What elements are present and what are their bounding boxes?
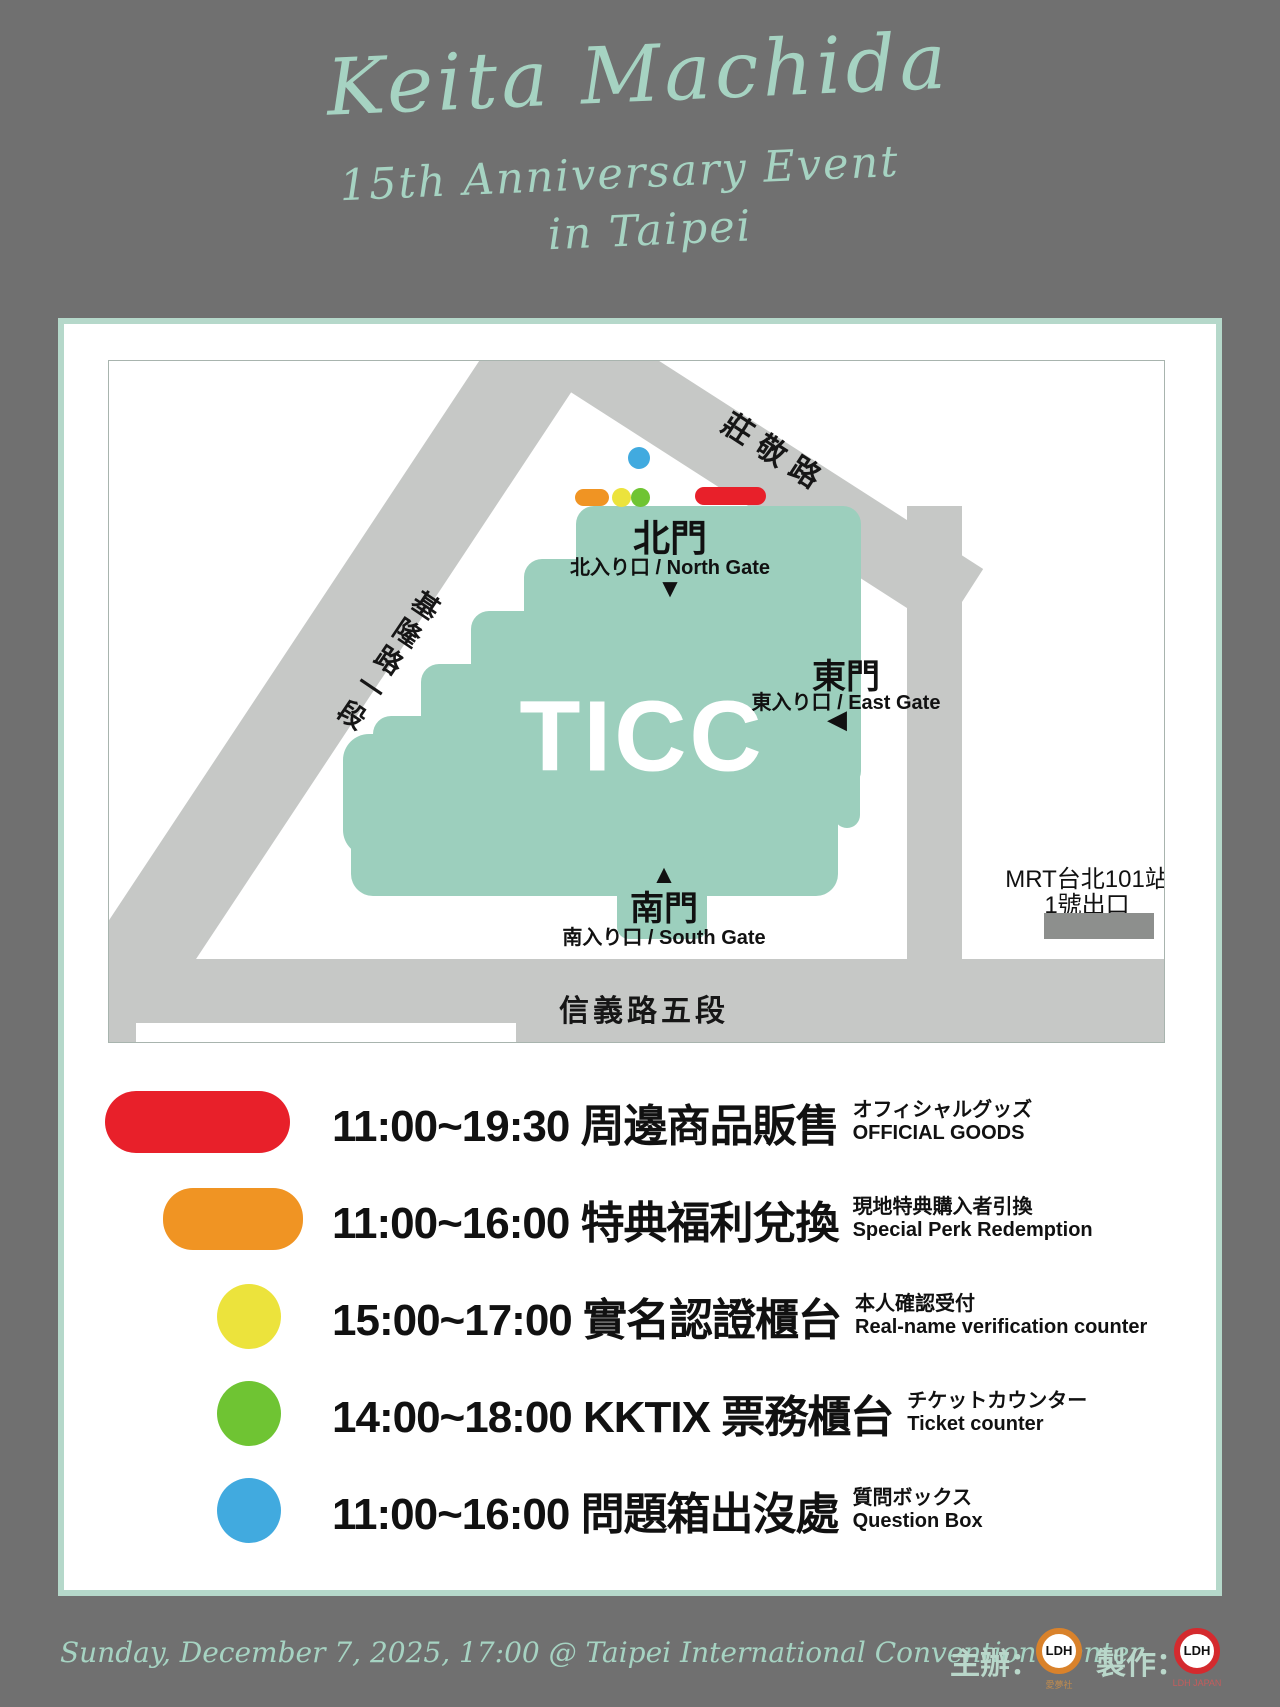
map-marker-ticket-counter bbox=[631, 488, 650, 507]
producer-ldh-logo: LDH bbox=[1174, 1628, 1220, 1674]
road-gap bbox=[136, 1023, 516, 1043]
legend-time-title: 11:00~16:00 特典福利兌換 bbox=[332, 1187, 839, 1251]
legend-marker-cell bbox=[105, 1284, 330, 1349]
south-gate-sub: 南入り口 / South Gate bbox=[562, 921, 765, 950]
map-marker-verification bbox=[612, 488, 631, 507]
legend-note-en: Ticket counter bbox=[907, 1413, 1087, 1436]
legend-note-jp: 現地特典購入者引換 bbox=[853, 1196, 1093, 1219]
east-gate-arrow-icon: ◀ bbox=[827, 706, 847, 732]
event-location-line: in Taipei bbox=[547, 201, 754, 260]
legend-notes: 本人確認受付 Real-name verification counter bbox=[855, 1293, 1147, 1339]
legend-notes: 現地特典購入者引換 Special Perk Redemption bbox=[853, 1196, 1093, 1242]
legend-note-en: OFFICIAL GOODS bbox=[853, 1122, 1033, 1145]
legend-time-title: 11:00~19:30 周邊商品販售 bbox=[332, 1090, 839, 1154]
legend-note-en: Question Box bbox=[853, 1510, 983, 1533]
orange-pill-marker bbox=[163, 1188, 303, 1250]
legend-notes: オフィシャルグッズ OFFICIAL GOODS bbox=[853, 1099, 1033, 1145]
header: Keita Machida 15th Anniversary Event in … bbox=[1, 0, 1280, 28]
legend-time-title: 15:00~17:00 實名認證櫃台 bbox=[332, 1284, 841, 1348]
building-block bbox=[343, 734, 471, 856]
blue-circle-marker bbox=[217, 1478, 281, 1543]
legend-marker-cell bbox=[105, 1188, 330, 1250]
producer-label: 製作： bbox=[1096, 1639, 1186, 1683]
map-marker-question-box bbox=[628, 447, 650, 469]
event-subtitle: 15th Anniversary Event bbox=[339, 137, 901, 211]
venue-map: 莊敬路 基隆路一段 信義路五段 TICC 北門 北入り口 / North Gat… bbox=[108, 360, 1165, 1043]
legend-row-verification: 15:00~17:00 實名認證櫃台 本人確認受付 Real-name veri… bbox=[105, 1283, 1165, 1349]
legend-note-en: Special Perk Redemption bbox=[853, 1219, 1093, 1242]
legend-note-en: Real-name verification counter bbox=[855, 1316, 1147, 1339]
event-poster: Keita Machida 15th Anniversary Event in … bbox=[0, 0, 1280, 1707]
legend-note-jp: 本人確認受付 bbox=[855, 1293, 1147, 1316]
legend-notes: チケットカウンター Ticket counter bbox=[907, 1390, 1087, 1436]
map-marker-official-goods bbox=[695, 487, 766, 505]
organizer-label: 主辦： bbox=[950, 1639, 1040, 1683]
legend-note-jp: 質問ボックス bbox=[853, 1487, 983, 1510]
organizer-logo-caption: 愛夢社 bbox=[1045, 1678, 1072, 1691]
legend-row-question-box: 11:00~16:00 問題箱出沒處 質問ボックス Question Box bbox=[105, 1477, 1165, 1543]
north-gate-arrow-icon: ▼ bbox=[657, 575, 683, 601]
road-label-xinyi: 信義路五段 bbox=[559, 986, 729, 1030]
legend-marker-cell bbox=[105, 1478, 330, 1543]
producer-logo-caption: LDH JAPAN bbox=[1173, 1678, 1222, 1688]
legend-row-perk-redemption: 11:00~16:00 特典福利兌換 現地特典購入者引換 Special Per… bbox=[105, 1186, 1165, 1252]
legend-row-ticket-counter: 14:00~18:00 KKTIX 票務櫃台 チケットカウンター Ticket … bbox=[105, 1380, 1165, 1446]
red-pill-marker bbox=[105, 1091, 290, 1153]
legend-notes: 質問ボックス Question Box bbox=[853, 1487, 983, 1533]
green-circle-marker bbox=[217, 1381, 281, 1446]
organizer-ldh-logo: LDH bbox=[1036, 1628, 1082, 1674]
legend-marker-cell bbox=[105, 1091, 330, 1153]
map-marker-perk-redemption bbox=[575, 489, 609, 506]
mrt-exit-block bbox=[1044, 913, 1154, 939]
legend-marker-cell bbox=[105, 1381, 330, 1446]
legend-time-title: 11:00~16:00 問題箱出沒處 bbox=[332, 1478, 839, 1542]
legend-time-title: 14:00~18:00 KKTIX 票務櫃台 bbox=[332, 1381, 893, 1445]
legend-row-official-goods: 11:00~19:30 周邊商品販售 オフィシャルグッズ OFFICIAL GO… bbox=[105, 1089, 1165, 1155]
yellow-circle-marker bbox=[217, 1284, 281, 1349]
legend-note-jp: オフィシャルグッズ bbox=[853, 1099, 1033, 1122]
venue-name: TICC bbox=[519, 680, 764, 795]
legend-note-jp: チケットカウンター bbox=[907, 1390, 1087, 1413]
event-title: Keita Machida bbox=[325, 17, 952, 134]
